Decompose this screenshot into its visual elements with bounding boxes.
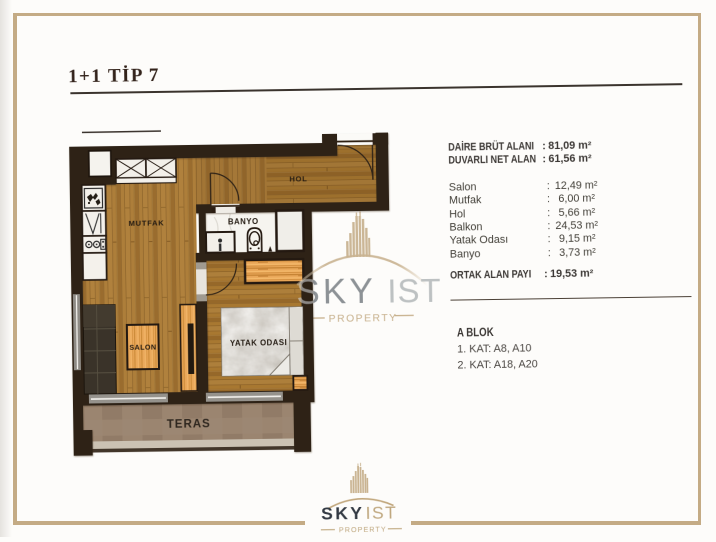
svg-text:MUTFAK: MUTFAK	[129, 218, 165, 228]
svg-text:SALON: SALON	[129, 342, 156, 351]
svg-text:IST: IST	[387, 272, 442, 310]
svg-text:SKY: SKY	[321, 503, 364, 524]
svg-text:BANYO: BANYO	[228, 217, 259, 226]
svg-text:TERAS: TERAS	[167, 418, 211, 431]
svg-text:PROPERTY: PROPERTY	[339, 525, 387, 535]
svg-text:PROPERTY: PROPERTY	[329, 313, 398, 325]
svg-text:IST: IST	[365, 502, 397, 522]
svg-text:HOL: HOL	[289, 174, 307, 183]
svg-text:YATAK ODASI: YATAK ODASI	[230, 338, 287, 348]
